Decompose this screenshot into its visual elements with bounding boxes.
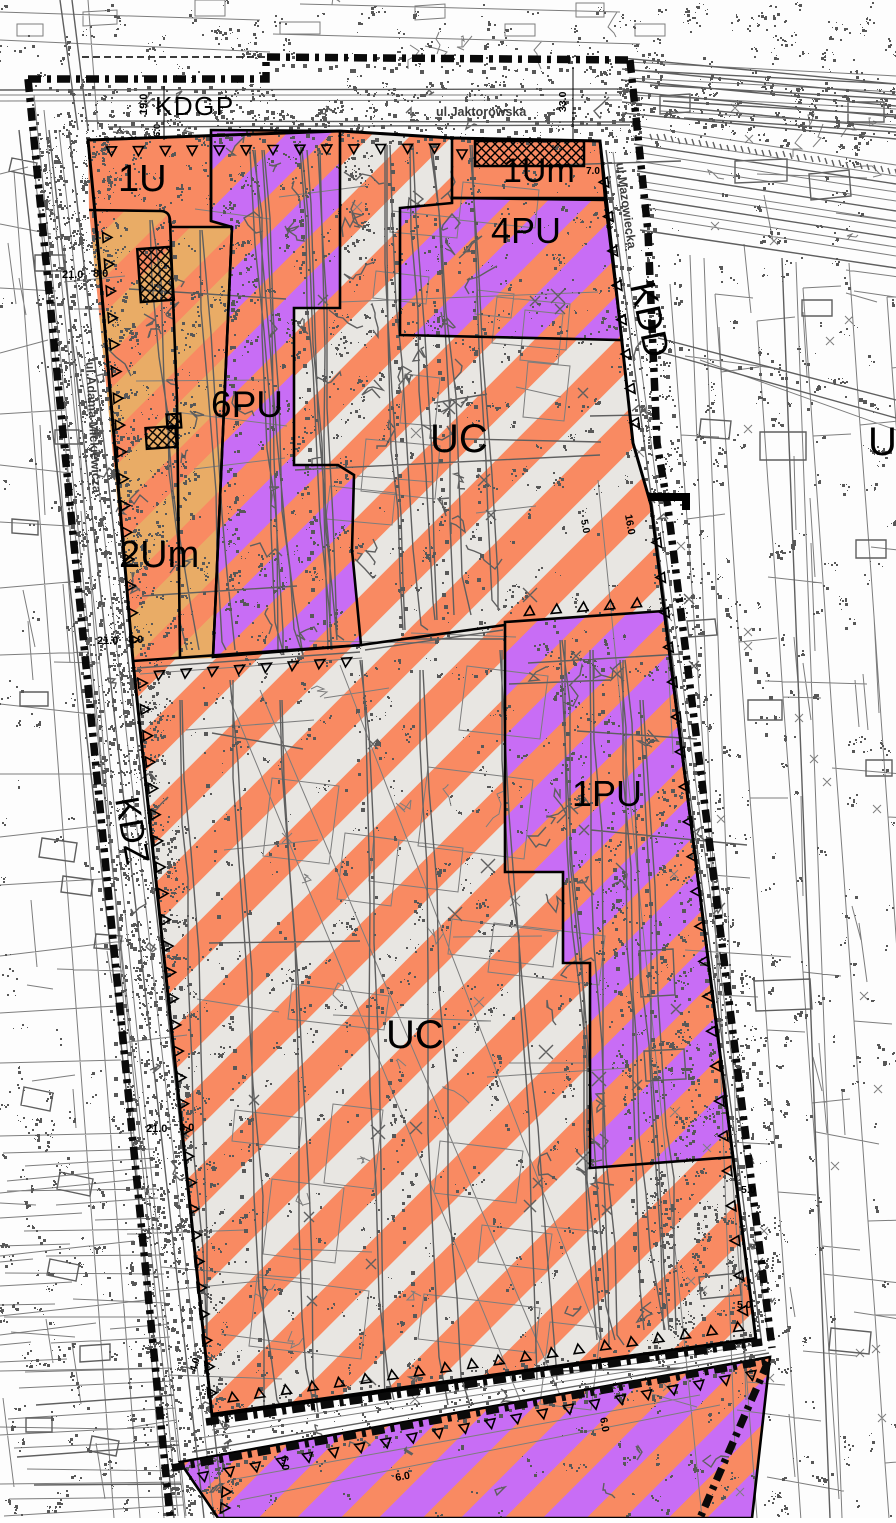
svg-text:8.0: 8.0 (179, 1122, 194, 1134)
svg-text:5.0: 5.0 (741, 1184, 756, 1196)
svg-text:UC: UC (868, 420, 896, 464)
svg-text:8.0: 8.0 (128, 634, 143, 646)
svg-text:33.0: 33.0 (557, 91, 569, 112)
svg-text:6.0: 6.0 (394, 1470, 411, 1484)
svg-text:6.0: 6.0 (278, 1455, 291, 1471)
svg-text:19.0: 19.0 (138, 94, 150, 115)
svg-text:6.0: 6.0 (152, 124, 163, 137)
svg-text:6.0: 6.0 (597, 1416, 611, 1433)
svg-text:7.0: 7.0 (586, 166, 600, 177)
svg-text:21.0: 21.0 (97, 635, 118, 647)
svg-text:5.0: 5.0 (737, 1299, 752, 1311)
svg-text:1Um: 1Um (503, 152, 575, 190)
svg-text:8.0: 8.0 (93, 268, 108, 280)
svg-text:4PU: 4PU (491, 210, 561, 251)
svg-text:6PU: 6PU (211, 384, 283, 425)
svg-text:1U: 1U (118, 158, 167, 200)
svg-text:21.0: 21.0 (62, 269, 83, 281)
svg-text:2Um: 2Um (119, 534, 199, 576)
svg-text:UC: UC (386, 1013, 444, 1057)
svg-text:21.0: 21.0 (146, 1123, 167, 1135)
svg-text:KDGP: KDGP (155, 91, 235, 121)
svg-text:1PU: 1PU (572, 773, 642, 814)
svg-text:ul.Jaktorowska: ul.Jaktorowska (436, 105, 527, 119)
svg-text:UC: UC (430, 417, 488, 461)
